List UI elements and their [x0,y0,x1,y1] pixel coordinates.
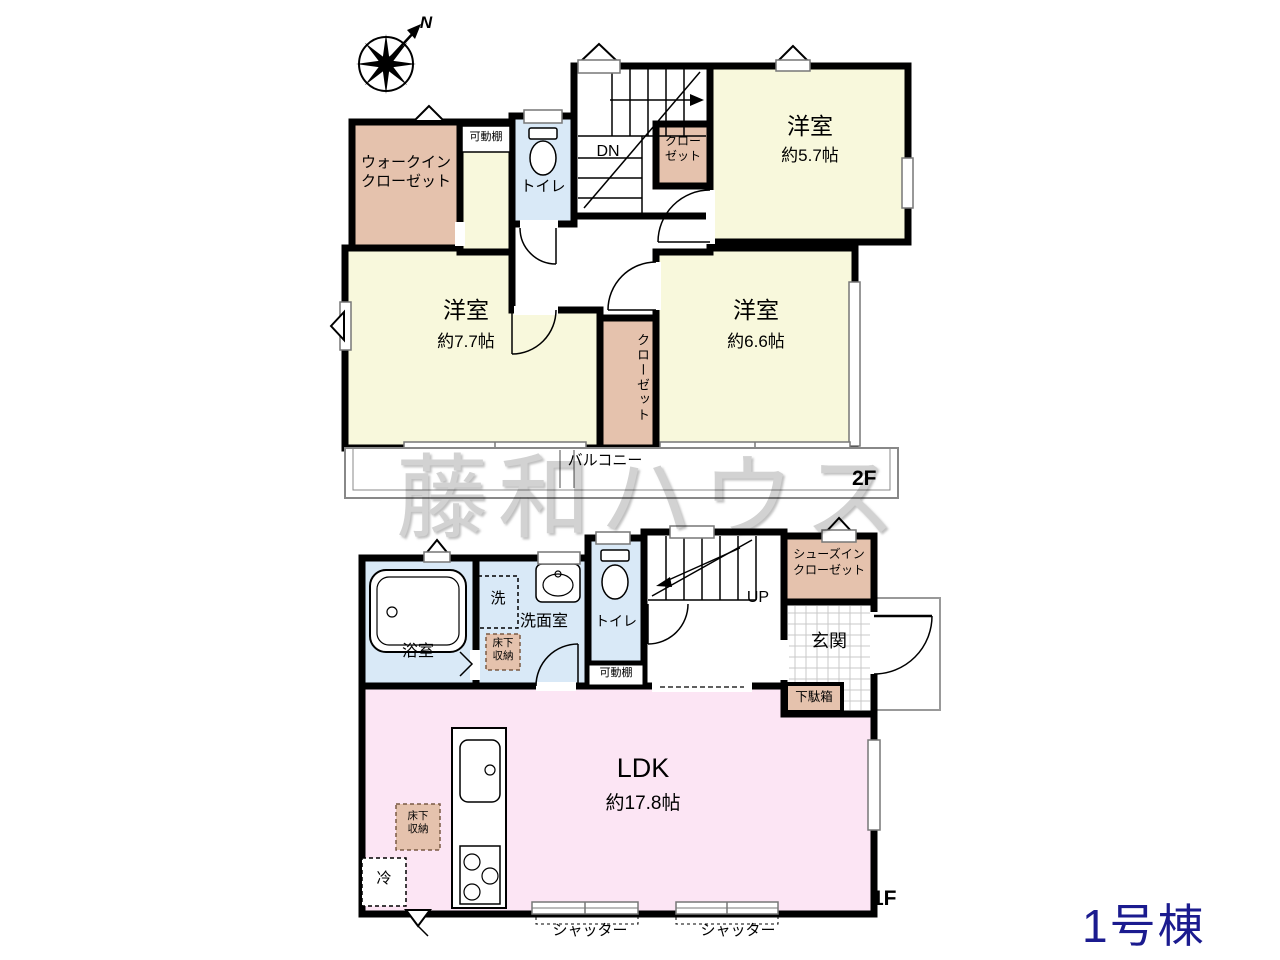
bath-label: 浴室 [378,642,458,662]
washroom-label: 洗面室 [506,612,582,632]
closet-mid-label: クローゼット [604,330,654,426]
shoe-cabinet-label: 下駄箱 [786,690,842,706]
toilet-fixture-1f [601,550,629,599]
stairs-direction-2f: DN [576,142,640,162]
stair-hall-1f [644,532,784,686]
bedroom-77-label: 洋室 約7.7帖 [388,296,544,352]
washbasin [536,564,580,602]
toilet-label-2f: トイレ [512,178,574,197]
bedroom-57-name: 洋室 [728,112,892,141]
floor1-tag: 1F [872,886,916,912]
ldk-label: LDK 約17.8帖 [558,752,728,816]
compass-north-label: N [414,12,438,33]
ldk-size: 約17.8帖 [558,792,728,816]
underfloor-storage-washroom-label: 床下 収納 [486,637,520,662]
bedroom-66-label: 洋室 約6.6帖 [672,296,840,352]
bedroom-77-name: 洋室 [388,296,544,325]
entrance-label: 玄関 [796,630,862,653]
compass-rose [356,24,421,94]
walk-in-closet-label: ウォークイン クローゼット [352,154,460,192]
closet-57-label: クロー ゼット [656,134,710,164]
floorplan-page: ウォークイン クローゼット 可動棚 トイレ DN クロー ゼット 洋室 約5.7… [0,0,1280,960]
floorplan-drawing [0,0,1280,960]
bathtub [370,570,466,652]
washer-label: 洗 [480,590,516,609]
kitchen-counter [452,728,506,908]
first-floor-plan [362,518,940,936]
bedroom-77-size: 約7.7帖 [388,331,544,352]
shelf-label-1f: 可動棚 [588,667,644,681]
floor2-tag: 2F [852,466,896,492]
shutter-right-label: シャッター [690,922,786,941]
underfloor-storage-ldk-label: 床下 収納 [398,810,438,835]
balcony-label: バルコニー [545,452,665,471]
compass-star [356,34,416,94]
bedroom-57-size: 約5.7帖 [728,145,892,166]
bedroom-66-size: 約6.6帖 [672,331,840,352]
toilet-label-1f: トイレ [588,613,644,631]
bedroom-66-name: 洋室 [672,296,840,325]
fridge-label: 冷 [365,870,403,889]
entrance-doorway-gap [870,612,879,674]
ldk-name: LDK [558,752,728,786]
building-number-label: 1号棟 [1082,890,1206,956]
stairs-direction-1f: UP [736,588,780,608]
shelf-label-2f: 可動棚 [460,131,512,145]
shoes-closet-label: シューズイン クローゼット [784,546,874,578]
shutter-left-label: シャッター [542,922,638,941]
toilet-fixture-2f [529,128,557,175]
bedroom-57-label: 洋室 約5.7帖 [728,112,892,166]
